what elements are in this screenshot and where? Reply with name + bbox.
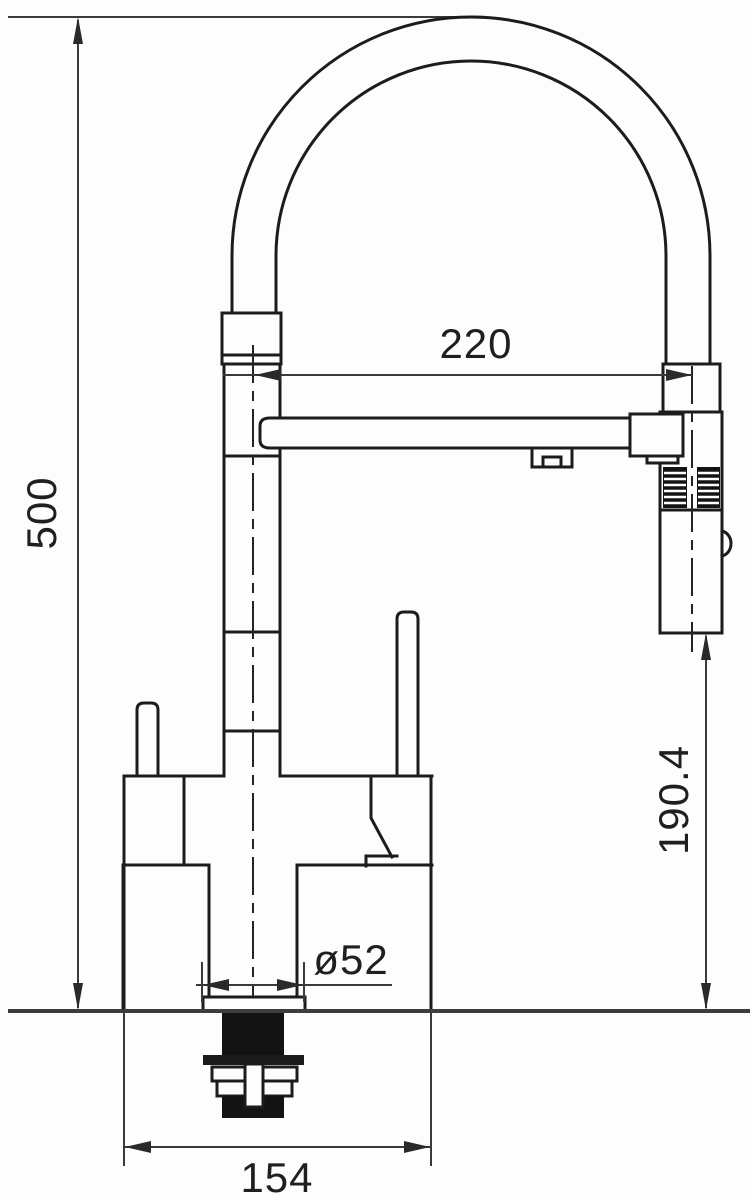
technical-drawing-sheet: 500 220 190.4 ø52 154 [0, 0, 751, 1200]
body-chamfer [371, 777, 392, 857]
arrow-up-icon [701, 633, 711, 660]
arrow-left-icon [125, 1141, 151, 1153]
sprayer-holder [630, 414, 683, 456]
mounting-stud [245, 1064, 263, 1107]
faucet-dimension-diagram: 500 220 190.4 ø52 154 [0, 0, 751, 1200]
arrow-left-icon [255, 369, 281, 381]
sprayer-head [660, 364, 731, 652]
label-spout-clearance: 190.4 [650, 745, 697, 855]
arrow-left-icon [203, 979, 229, 991]
label-body-width: 154 [240, 1154, 313, 1200]
spout-arm [260, 414, 683, 467]
arrow-down-icon [73, 983, 83, 1010]
spring-hose-arc [232, 17, 710, 364]
arrow-up-icon [73, 17, 83, 44]
arrow-right-icon [404, 1141, 430, 1153]
label-spout-reach: 220 [439, 320, 512, 367]
right-handle [397, 612, 418, 776]
dimension-spout-reach [223, 369, 692, 381]
arrow-down-icon [701, 983, 711, 1010]
dimension-spout-clearance [701, 633, 711, 1010]
left-handle [137, 703, 158, 776]
mounting-hardware [203, 1013, 304, 1118]
sprayer-holder-lip [647, 456, 678, 463]
label-overall-height: 500 [18, 476, 65, 549]
base-flange [203, 997, 305, 1011]
dimension-overall-height [73, 17, 83, 1010]
aerator-outlet [532, 448, 572, 467]
arrow-right-icon [277, 979, 303, 991]
threaded-shank [222, 1013, 284, 1055]
riser-collar [222, 313, 281, 364]
label-base-diameter: ø52 [313, 936, 388, 983]
